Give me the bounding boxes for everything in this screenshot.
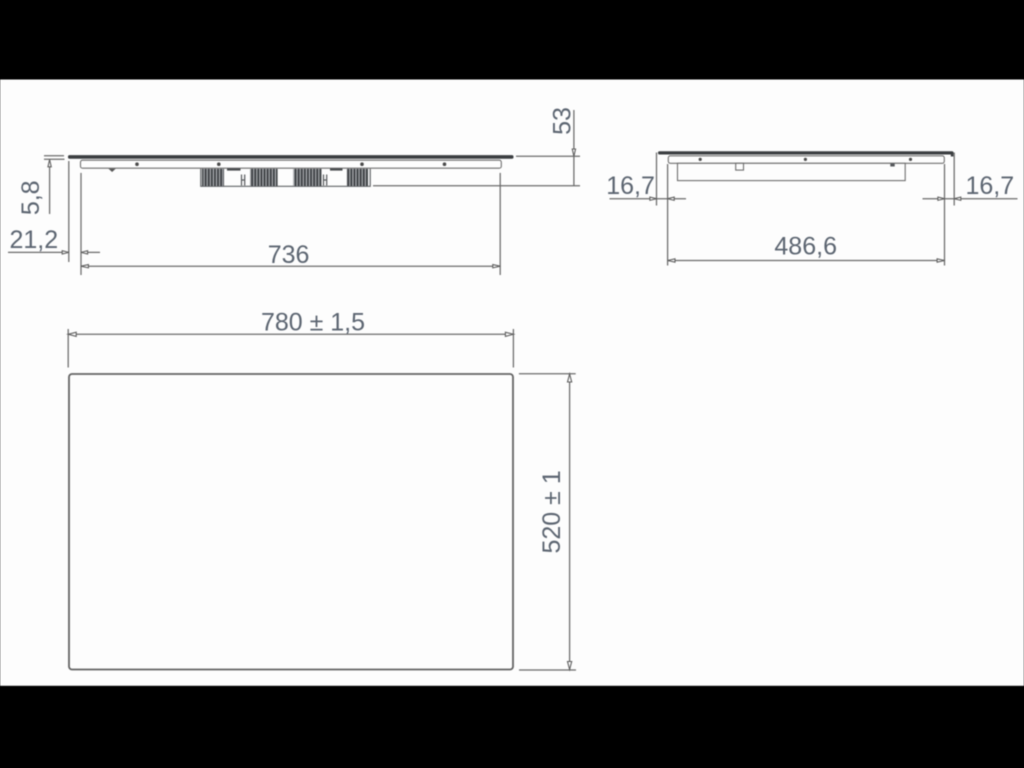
svg-text:780 ± 1,5: 780 ± 1,5 bbox=[261, 309, 365, 337]
svg-text:16,7: 16,7 bbox=[606, 172, 655, 200]
svg-text:5,8: 5,8 bbox=[17, 180, 45, 215]
svg-text:736: 736 bbox=[268, 241, 310, 269]
svg-text:16,7: 16,7 bbox=[965, 172, 1014, 200]
svg-text:520 ± 1: 520 ± 1 bbox=[538, 470, 566, 553]
svg-text:486,6: 486,6 bbox=[774, 233, 837, 261]
svg-text:21,2: 21,2 bbox=[9, 226, 58, 254]
svg-text:53: 53 bbox=[549, 107, 577, 135]
